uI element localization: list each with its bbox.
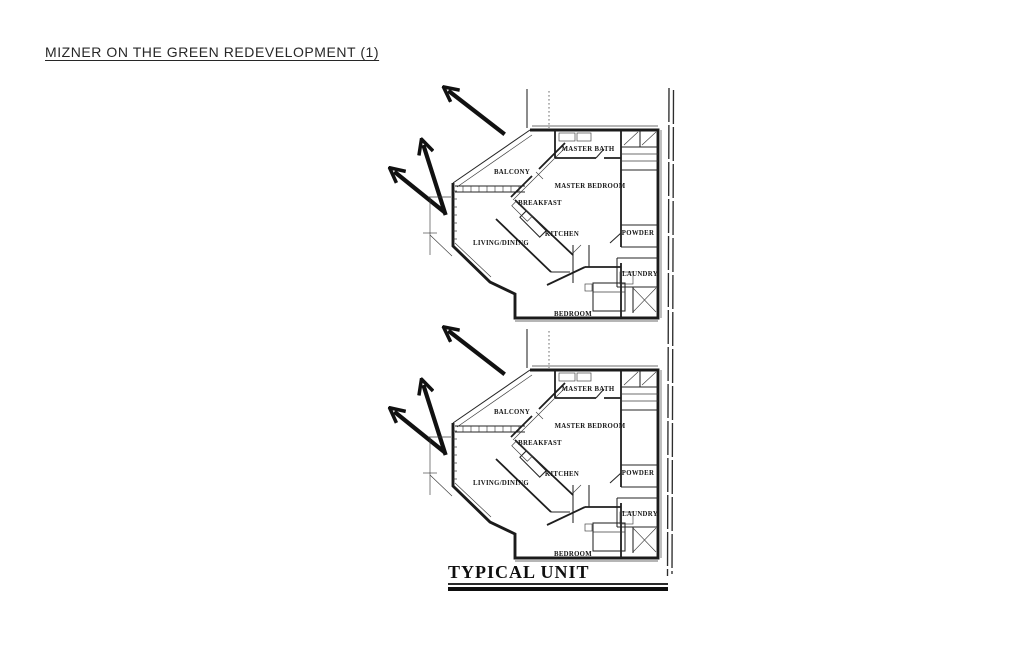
floor-plan-unit-1 [396, 89, 661, 321]
caption-underline [448, 583, 668, 585]
floor-plan-unit-2 [396, 329, 661, 561]
drawing-caption: TYPICAL UNIT [448, 562, 668, 582]
drawing-caption-block: TYPICAL UNIT [448, 562, 668, 591]
property-line [668, 88, 674, 576]
caption-bar [448, 587, 668, 592]
